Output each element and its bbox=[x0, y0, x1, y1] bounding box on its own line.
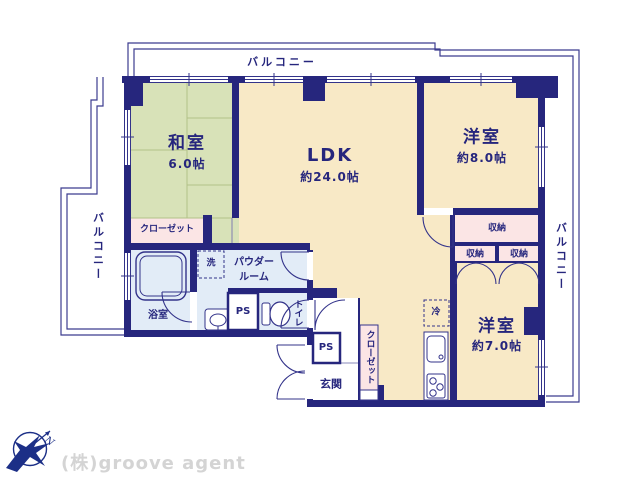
entry-door-upper bbox=[277, 345, 305, 373]
closet-hall-label: クローゼット bbox=[365, 330, 374, 384]
powder-room-label-2: ルーム bbox=[239, 273, 269, 283]
storage-a-label: 収納 bbox=[466, 251, 484, 260]
ldk-name: LDK bbox=[307, 147, 353, 165]
fridge-label: 冷 bbox=[431, 309, 440, 318]
washitsu-name: 和室 bbox=[168, 136, 206, 153]
storage-b-label: 収納 bbox=[510, 251, 528, 260]
washitsu-size: 6.0帖 bbox=[168, 158, 205, 170]
kitchen-counter bbox=[424, 332, 448, 400]
company-watermark: (株)groove agent bbox=[61, 449, 246, 475]
bedroom7-size: 約7.0帖 bbox=[472, 340, 522, 352]
laundry-label: 洗 bbox=[206, 260, 215, 269]
closet-washitsu-label: クローゼット bbox=[140, 226, 194, 235]
bedroom7-name: 洋室 bbox=[478, 319, 516, 336]
toilet-icon bbox=[262, 302, 290, 326]
ps-west-label: PS bbox=[236, 307, 251, 317]
bedroom8-size: 約8.0帖 bbox=[457, 152, 507, 164]
toilet-label: トイレ bbox=[293, 300, 302, 327]
storage-wide-label: 収納 bbox=[488, 225, 506, 234]
entry-door-lower bbox=[277, 371, 305, 399]
balcony-top-label: バルコニー bbox=[247, 57, 317, 68]
floor-plan-page: N バルコニー バルコニー バルコニー 和室 6.0帖 LDK 約24.0帖 洋… bbox=[0, 0, 640, 480]
genkan-label: 玄関 bbox=[320, 379, 342, 390]
bedroom8-name: 洋室 bbox=[463, 130, 501, 147]
powder-room-label-1: パウダー bbox=[234, 258, 274, 268]
balcony-left-label: バルコニー bbox=[93, 212, 104, 282]
ps-hall-label: PS bbox=[319, 343, 334, 353]
bath-label: 浴室 bbox=[148, 311, 168, 321]
balcony-right-label: バルコニー bbox=[556, 222, 567, 292]
bathtub-icon bbox=[136, 252, 186, 300]
compass-logo: N bbox=[6, 431, 57, 472]
ldk-size: 約24.0帖 bbox=[300, 171, 360, 183]
